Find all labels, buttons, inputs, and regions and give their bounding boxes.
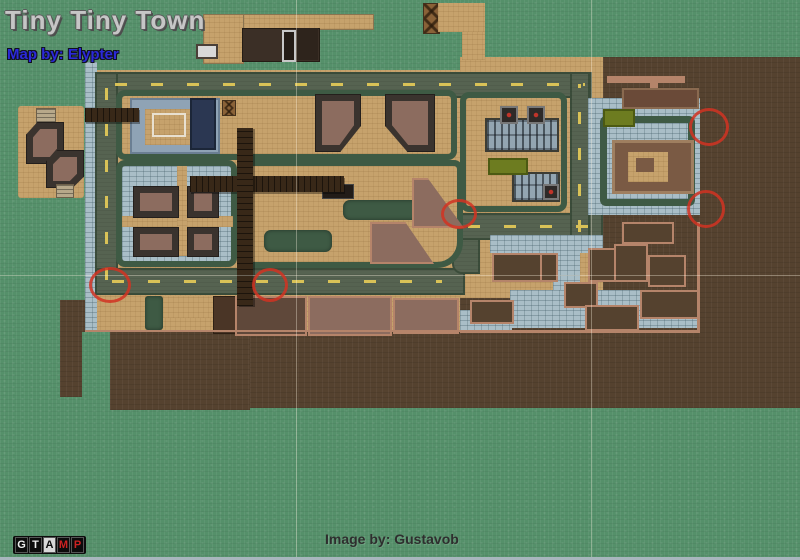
logo-letter: P [71, 537, 84, 553]
map-marker-circle [89, 267, 131, 303]
image-author-credit: Image by: Gustavob [325, 531, 459, 547]
map-marker-circle [687, 190, 725, 228]
map-author-credit: Map by: Elypter [7, 46, 119, 63]
gtamp-logo: G T A M P [13, 536, 86, 554]
map-marker-circle [441, 199, 477, 229]
logo-letter: A [43, 537, 56, 553]
logo-letter: T [29, 537, 42, 553]
map-marker-circle [252, 268, 288, 302]
logo-letter: G [15, 537, 28, 553]
map-marker-circle [689, 108, 729, 146]
marker-layer [0, 0, 800, 560]
map-title: Tiny Tiny Town [5, 5, 205, 36]
game-map-image: Tiny Tiny Town Map by: Elypter Image by:… [0, 0, 800, 560]
logo-letter: M [57, 537, 70, 553]
